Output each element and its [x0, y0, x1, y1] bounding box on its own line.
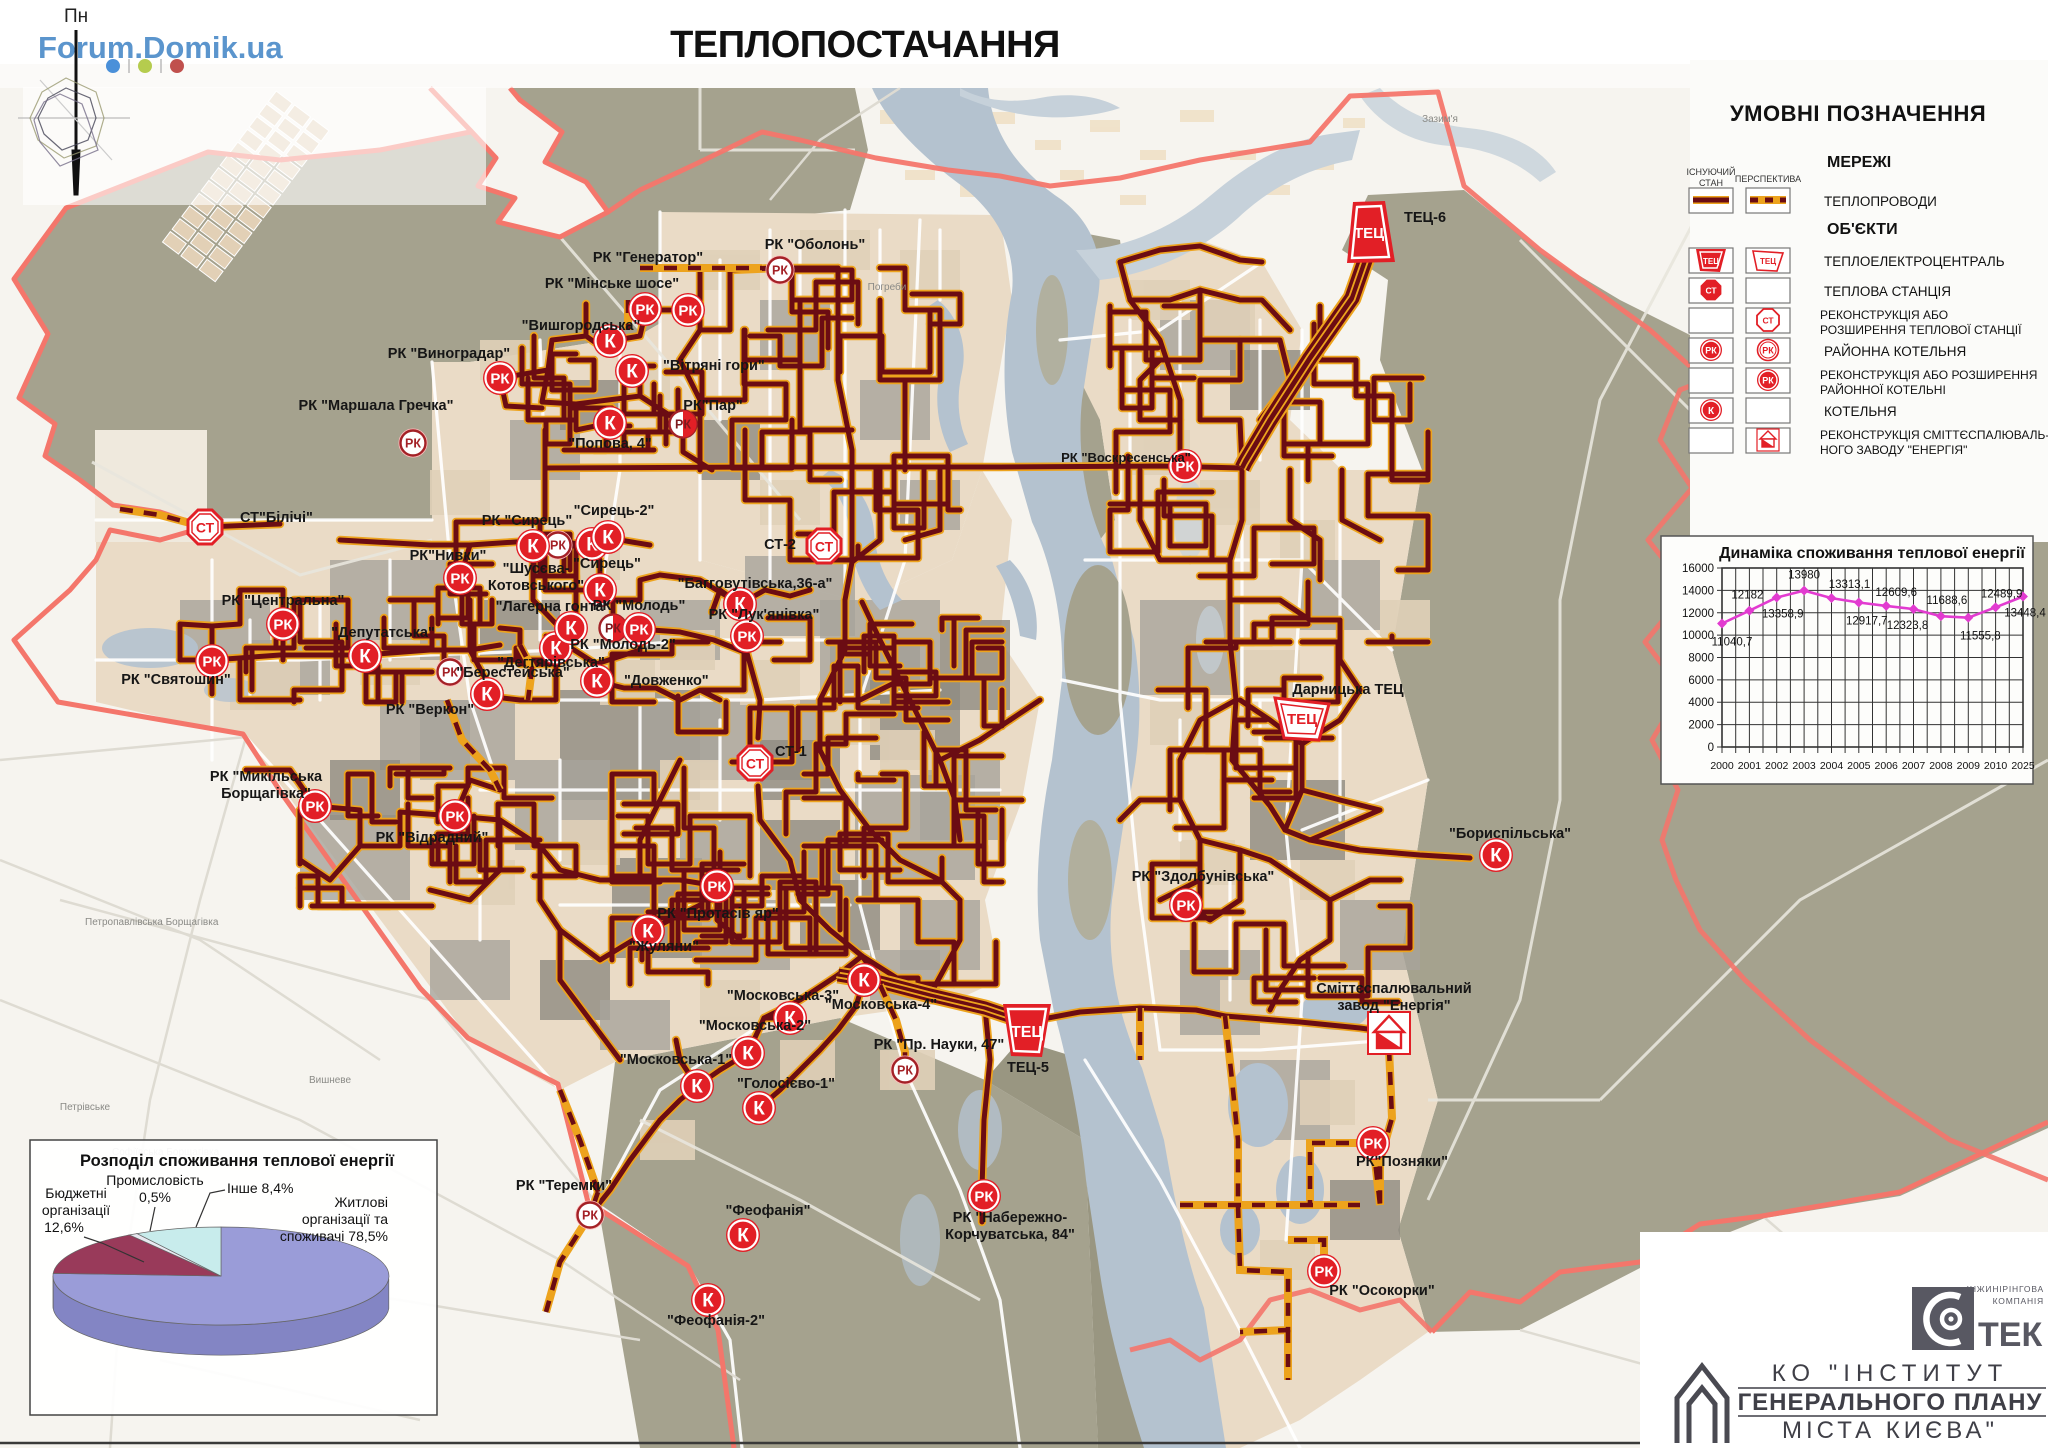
svg-text:2000: 2000 — [1688, 720, 1714, 732]
svg-text:12609,6: 12609,6 — [1875, 587, 1917, 599]
svg-text:12323,8: 12323,8 — [1887, 620, 1929, 632]
svg-text:ТЕПЛОЕЛЕКТРОЦЕНТРАЛЬ: ТЕПЛОЕЛЕКТРОЦЕНТРАЛЬ — [1824, 254, 2005, 269]
svg-text:"Московська-1": "Московська-1" — [620, 1052, 732, 1068]
svg-text:організації: організації — [42, 1202, 110, 1218]
svg-text:споживачі 78,5%: споживачі 78,5% — [280, 1228, 388, 1244]
svg-text:Котовського": Котовського" — [488, 578, 584, 594]
svg-text:"Вітряні гори": "Вітряні гори" — [663, 358, 765, 374]
svg-text:організації та: організації та — [302, 1211, 388, 1227]
svg-text:6000: 6000 — [1688, 675, 1714, 687]
svg-text:ГЕНЕРАЛЬНОГО ПЛАНУ: ГЕНЕРАЛЬНОГО ПЛАНУ — [1738, 1389, 2043, 1416]
svg-text:2025: 2025 — [2011, 760, 2035, 772]
svg-text:КО "ІНСТИТУТ: КО "ІНСТИТУТ — [1772, 1360, 2009, 1387]
svg-text:"Сирець-2": "Сирець-2" — [574, 503, 655, 519]
svg-text:0,5%: 0,5% — [139, 1189, 171, 1205]
svg-text:2000: 2000 — [1710, 760, 1734, 772]
svg-text:11040,7: 11040,7 — [1712, 637, 1753, 649]
svg-text:РК"Пар": РК"Пар" — [683, 398, 743, 414]
svg-text:ОБ'ЄКТИ: ОБ'ЄКТИ — [1827, 221, 1898, 238]
svg-text:ТЕК: ТЕК — [1978, 1316, 2042, 1354]
svg-text:2002: 2002 — [1765, 760, 1789, 772]
svg-text:11555,8: 11555,8 — [1960, 631, 2001, 643]
svg-text:РК "Молодь": РК "Молодь" — [593, 598, 686, 614]
svg-text:ТЕПЛОВА СТАНЦІЯ: ТЕПЛОВА СТАНЦІЯ — [1824, 284, 1951, 299]
svg-text:"Московська-2": "Московська-2" — [699, 1018, 811, 1034]
svg-text:РК "Оболонь": РК "Оболонь" — [765, 237, 866, 253]
svg-text:2006: 2006 — [1875, 760, 1899, 772]
svg-text:РК "Сирець": РК "Сирець" — [482, 513, 572, 529]
svg-text:2005: 2005 — [1847, 760, 1871, 772]
svg-text:12000: 12000 — [1682, 608, 1714, 620]
svg-text:ТЕЦ-5: ТЕЦ-5 — [1007, 1060, 1049, 1076]
svg-text:РК "Генератор": РК "Генератор" — [593, 250, 703, 266]
svg-text:РЕКОНСТРУКЦІЯ СМІТТЄСПАЛЮВАЛЬ-: РЕКОНСТРУКЦІЯ СМІТТЄСПАЛЮВАЛЬ- — [1820, 428, 2048, 442]
svg-text:"Московська-3": "Московська-3" — [727, 988, 839, 1004]
svg-text:Промисловість: Промисловість — [106, 1172, 203, 1188]
svg-text:2008: 2008 — [1929, 760, 1953, 772]
svg-text:РК "Осокорки": РК "Осокорки" — [1329, 1283, 1434, 1299]
svg-text:Динаміка споживання теплової е: Динаміка споживання теплової енергії — [1719, 545, 2025, 562]
svg-text:Пн: Пн — [64, 6, 88, 27]
svg-text:МЕРЕЖІ: МЕРЕЖІ — [1827, 154, 1891, 171]
svg-text:Інше 8,4%: Інше 8,4% — [227, 1180, 293, 1196]
svg-text:РК "Теремки": РК "Теремки" — [516, 1178, 612, 1194]
svg-text:РАЙОННА КОТЕЛЬНЯ: РАЙОННА КОТЕЛЬНЯ — [1824, 344, 1966, 359]
svg-text:2009: 2009 — [1957, 760, 1981, 772]
svg-text:"Дегтярівська": "Дегтярівська" — [497, 655, 605, 671]
svg-text:РК"Нивки": РК"Нивки" — [410, 548, 487, 564]
svg-text:"Довженко": "Довженко" — [624, 673, 709, 689]
svg-text:Розподіл споживання теплової е: Розподіл споживання теплової енергії — [80, 1152, 394, 1170]
svg-text:Корчуватська, 84": Корчуватська, 84" — [945, 1227, 1075, 1243]
svg-text:РК "Відрадний": РК "Відрадний" — [376, 830, 489, 846]
svg-text:РК "Виноградар": РК "Виноградар" — [388, 346, 510, 362]
svg-text:"Сирець": "Сирець" — [573, 556, 641, 572]
svg-text:12,6%: 12,6% — [44, 1219, 84, 1235]
svg-text:НОГО ЗАВОДУ "ЕНЕРГІЯ": НОГО ЗАВОДУ "ЕНЕРГІЯ" — [1820, 443, 1967, 457]
svg-text:ІНЖИНІРІНГОВА: ІНЖИНІРІНГОВА — [1967, 1284, 2044, 1294]
svg-text:14000: 14000 — [1682, 585, 1714, 597]
svg-text:13313,1: 13313,1 — [1829, 579, 1871, 591]
svg-text:2001: 2001 — [1738, 760, 1762, 772]
svg-text:Сміттєспалювальний: Сміттєспалювальний — [1316, 981, 1471, 997]
svg-text:2010: 2010 — [1984, 760, 2008, 772]
svg-text:12182: 12182 — [1731, 590, 1763, 602]
svg-text:РОЗШИРЕННЯ ТЕПЛОВОЇ СТАНЦІЇ: РОЗШИРЕННЯ ТЕПЛОВОЇ СТАНЦІЇ — [1820, 323, 2022, 337]
svg-text:РК "Святошин": РК "Святошин" — [121, 672, 230, 688]
svg-text:"Феофанія": "Феофанія" — [725, 1203, 810, 1219]
svg-text:"Феофанія-2": "Феофанія-2" — [667, 1313, 765, 1329]
svg-text:"Московська-4": "Московська-4" — [825, 997, 937, 1013]
svg-text:РК "Воскресенська": РК "Воскресенська" — [1061, 450, 1191, 465]
svg-text:РК "Мінське шосе": РК "Мінське шосе" — [545, 276, 679, 292]
svg-text:11688,6: 11688,6 — [1927, 595, 1968, 607]
svg-text:Вишневе: Вишневе — [309, 1075, 352, 1086]
svg-text:13980: 13980 — [1788, 570, 1820, 582]
svg-text:УМОВНІ ПОЗНАЧЕННЯ: УМОВНІ ПОЗНАЧЕННЯ — [1730, 101, 1986, 126]
svg-text:4000: 4000 — [1688, 697, 1714, 709]
svg-text:РК "Молодь-2": РК "Молодь-2" — [570, 637, 676, 653]
svg-text:2003: 2003 — [1792, 760, 1816, 772]
svg-text:РК "Центральна": РК "Центральна" — [222, 593, 345, 609]
svg-text:МІСТА КИЄВА": МІСТА КИЄВА" — [1782, 1417, 1998, 1444]
svg-text:РК "Набережно-: РК "Набережно- — [953, 1210, 1068, 1226]
svg-text:РК "Здолбунівська": РК "Здолбунівська" — [1132, 869, 1275, 885]
svg-text:Бюджетні: Бюджетні — [45, 1185, 107, 1201]
svg-text:Зазим'я: Зазим'я — [1422, 114, 1458, 125]
svg-text:РЕКОНСТРУКЦІЯ АБО: РЕКОНСТРУКЦІЯ АБО — [1820, 308, 1948, 322]
svg-text:РК "Протасів яр": РК "Протасів яр" — [657, 906, 779, 922]
svg-text:8000: 8000 — [1688, 653, 1714, 665]
svg-text:КОМПАНІЯ: КОМПАНІЯ — [1993, 1296, 2044, 1306]
svg-text:13448,4: 13448,4 — [2004, 608, 2046, 620]
svg-text:"Бориспільська": "Бориспільська" — [1449, 826, 1571, 842]
svg-text:"Голосієво-1": "Голосієво-1" — [737, 1076, 835, 1092]
svg-text:РК "Микільська: РК "Микільська — [210, 769, 323, 785]
svg-text:РЕКОНСТРУКЦІЯ АБО РОЗШИРЕННЯ: РЕКОНСТРУКЦІЯ АБО РОЗШИРЕННЯ — [1820, 368, 2037, 382]
svg-text:РАЙОННОЇ КОТЕЛЬНІ: РАЙОННОЇ КОТЕЛЬНІ — [1820, 382, 1946, 397]
svg-text:Петрівське: Петрівське — [60, 1102, 111, 1113]
svg-text:"Попова, 4": "Попова, 4" — [568, 436, 652, 452]
svg-text:12489,9: 12489,9 — [1981, 588, 2023, 600]
svg-text:"Шусєва-: "Шусєва- — [503, 561, 570, 577]
svg-text:10000: 10000 — [1682, 630, 1714, 642]
svg-text:ІСНУЮЧИЙ: ІСНУЮЧИЙ — [1687, 166, 1736, 177]
svg-text:Петропавлівська Борщагівка: Петропавлівська Борщагівка — [85, 917, 219, 928]
svg-text:"Жуляни": "Жуляни" — [629, 939, 699, 955]
svg-text:РК "Маршала Гречка": РК "Маршала Гречка" — [299, 398, 454, 414]
svg-text:2004: 2004 — [1820, 760, 1844, 772]
svg-text:16000: 16000 — [1682, 563, 1714, 575]
svg-text:Погреби: Погреби — [868, 281, 907, 293]
svg-text:РК"Позняки": РК"Позняки" — [1356, 1154, 1448, 1170]
svg-text:РК "Веркон": РК "Веркон" — [386, 702, 474, 718]
svg-text:СТ-2: СТ-2 — [764, 537, 796, 553]
svg-text:"Вишгородська": "Вишгородська" — [522, 318, 641, 334]
svg-text:завод "Енергія": завод "Енергія" — [1337, 998, 1450, 1014]
svg-text:СТ-1: СТ-1 — [775, 744, 807, 760]
svg-text:Дарницька ТЕЦ: Дарницька ТЕЦ — [1292, 682, 1404, 698]
svg-text:12917,7: 12917,7 — [1846, 616, 1888, 628]
svg-text:РК "Пр. Науки, 47": РК "Пр. Науки, 47" — [874, 1037, 1005, 1053]
svg-text:13358,9: 13358,9 — [1762, 609, 1804, 621]
svg-text:"Депутатська": "Депутатська" — [331, 625, 435, 641]
svg-text:РК "Лук'янівка": РК "Лук'янівка" — [709, 607, 820, 623]
svg-text:Борщагівка": Борщагівка" — [221, 786, 311, 802]
svg-text:Житлові: Житлові — [334, 1194, 388, 1210]
svg-text:СТ"Білічі": СТ"Білічі" — [240, 510, 313, 526]
svg-text:2007: 2007 — [1902, 760, 1926, 772]
svg-text:КОТЕЛЬНЯ: КОТЕЛЬНЯ — [1824, 404, 1897, 419]
svg-text:ТЕПЛОПОСТАЧАННЯ: ТЕПЛОПОСТАЧАННЯ — [670, 24, 1060, 66]
svg-text:0: 0 — [1708, 742, 1714, 754]
svg-text:ПЕРСПЕКТИВА: ПЕРСПЕКТИВА — [1735, 174, 1801, 184]
svg-text:ТЕПЛОПРОВОДИ: ТЕПЛОПРОВОДИ — [1824, 194, 1937, 209]
svg-text:"Багговутівська,36-а": "Багговутівська,36-а" — [678, 576, 833, 592]
svg-text:СТАН: СТАН — [1699, 178, 1723, 188]
svg-text:ТЕЦ-6: ТЕЦ-6 — [1404, 210, 1446, 226]
